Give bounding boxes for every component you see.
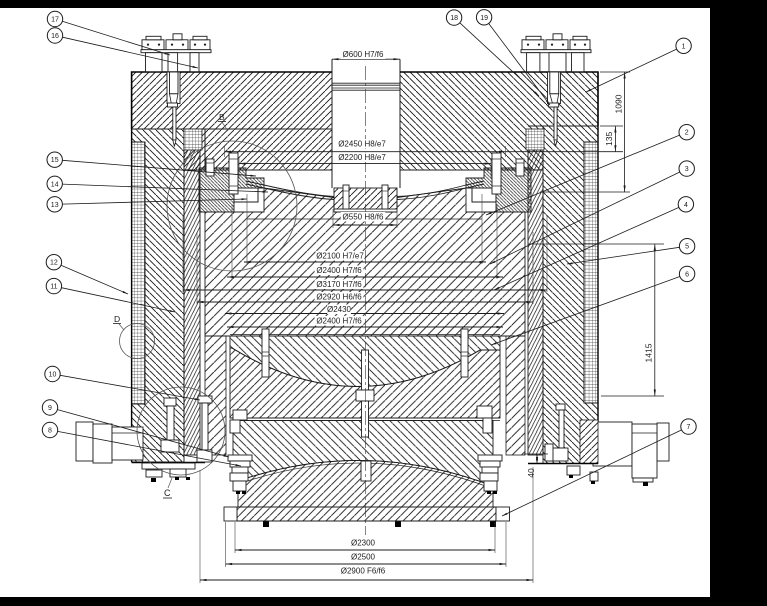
svg-text:4: 4 xyxy=(684,202,688,209)
svg-text:18: 18 xyxy=(450,15,458,22)
svg-text:Ø2920 H6/f6: Ø2920 H6/f6 xyxy=(316,293,362,302)
svg-text:Ø2430: Ø2430 xyxy=(327,305,352,314)
svg-text:Ø2450 H8/e7: Ø2450 H8/e7 xyxy=(338,140,386,149)
svg-text:16: 16 xyxy=(51,33,59,40)
svg-text:6: 6 xyxy=(685,271,689,278)
svg-text:17: 17 xyxy=(51,17,59,24)
svg-text:C: C xyxy=(164,488,171,498)
svg-text:B: B xyxy=(219,112,225,122)
svg-text:19: 19 xyxy=(480,15,488,22)
svg-text:Ø550 H8/f6: Ø550 H8/f6 xyxy=(343,213,384,222)
svg-text:Ø2100 H7/e7: Ø2100 H7/e7 xyxy=(316,252,364,261)
svg-text:Ø600 H7/f6: Ø600 H7/f6 xyxy=(343,50,384,59)
svg-text:3: 3 xyxy=(685,166,689,173)
svg-text:Ø2400 H7/f6: Ø2400 H7/f6 xyxy=(316,317,362,326)
svg-text:12: 12 xyxy=(50,260,58,267)
svg-text:11: 11 xyxy=(50,284,57,291)
svg-text:2: 2 xyxy=(685,130,689,137)
svg-text:13: 13 xyxy=(51,202,59,209)
svg-text:Ø2300: Ø2300 xyxy=(351,539,376,548)
svg-text:9: 9 xyxy=(48,405,52,412)
svg-text:1415: 1415 xyxy=(644,343,654,362)
svg-text:D: D xyxy=(114,314,120,324)
svg-text:Ø2900 F6/f6: Ø2900 F6/f6 xyxy=(341,567,386,576)
svg-text:135: 135 xyxy=(604,131,614,145)
svg-text:7: 7 xyxy=(687,424,691,431)
svg-text:10: 10 xyxy=(49,372,57,379)
svg-text:1: 1 xyxy=(682,43,686,50)
svg-text:Ø2500: Ø2500 xyxy=(351,553,376,562)
svg-text:Ø2200 H8/e7: Ø2200 H8/e7 xyxy=(338,153,386,162)
svg-text:Ø3170 H7/f6: Ø3170 H7/f6 xyxy=(316,280,362,289)
svg-text:8: 8 xyxy=(48,428,52,435)
svg-text:5: 5 xyxy=(685,244,689,251)
svg-text:14: 14 xyxy=(51,181,59,188)
svg-text:40: 40 xyxy=(526,468,536,478)
svg-text:Ø2400 H7/f6: Ø2400 H7/f6 xyxy=(316,266,362,275)
svg-text:15: 15 xyxy=(51,157,59,164)
svg-text:1090: 1090 xyxy=(613,94,623,113)
